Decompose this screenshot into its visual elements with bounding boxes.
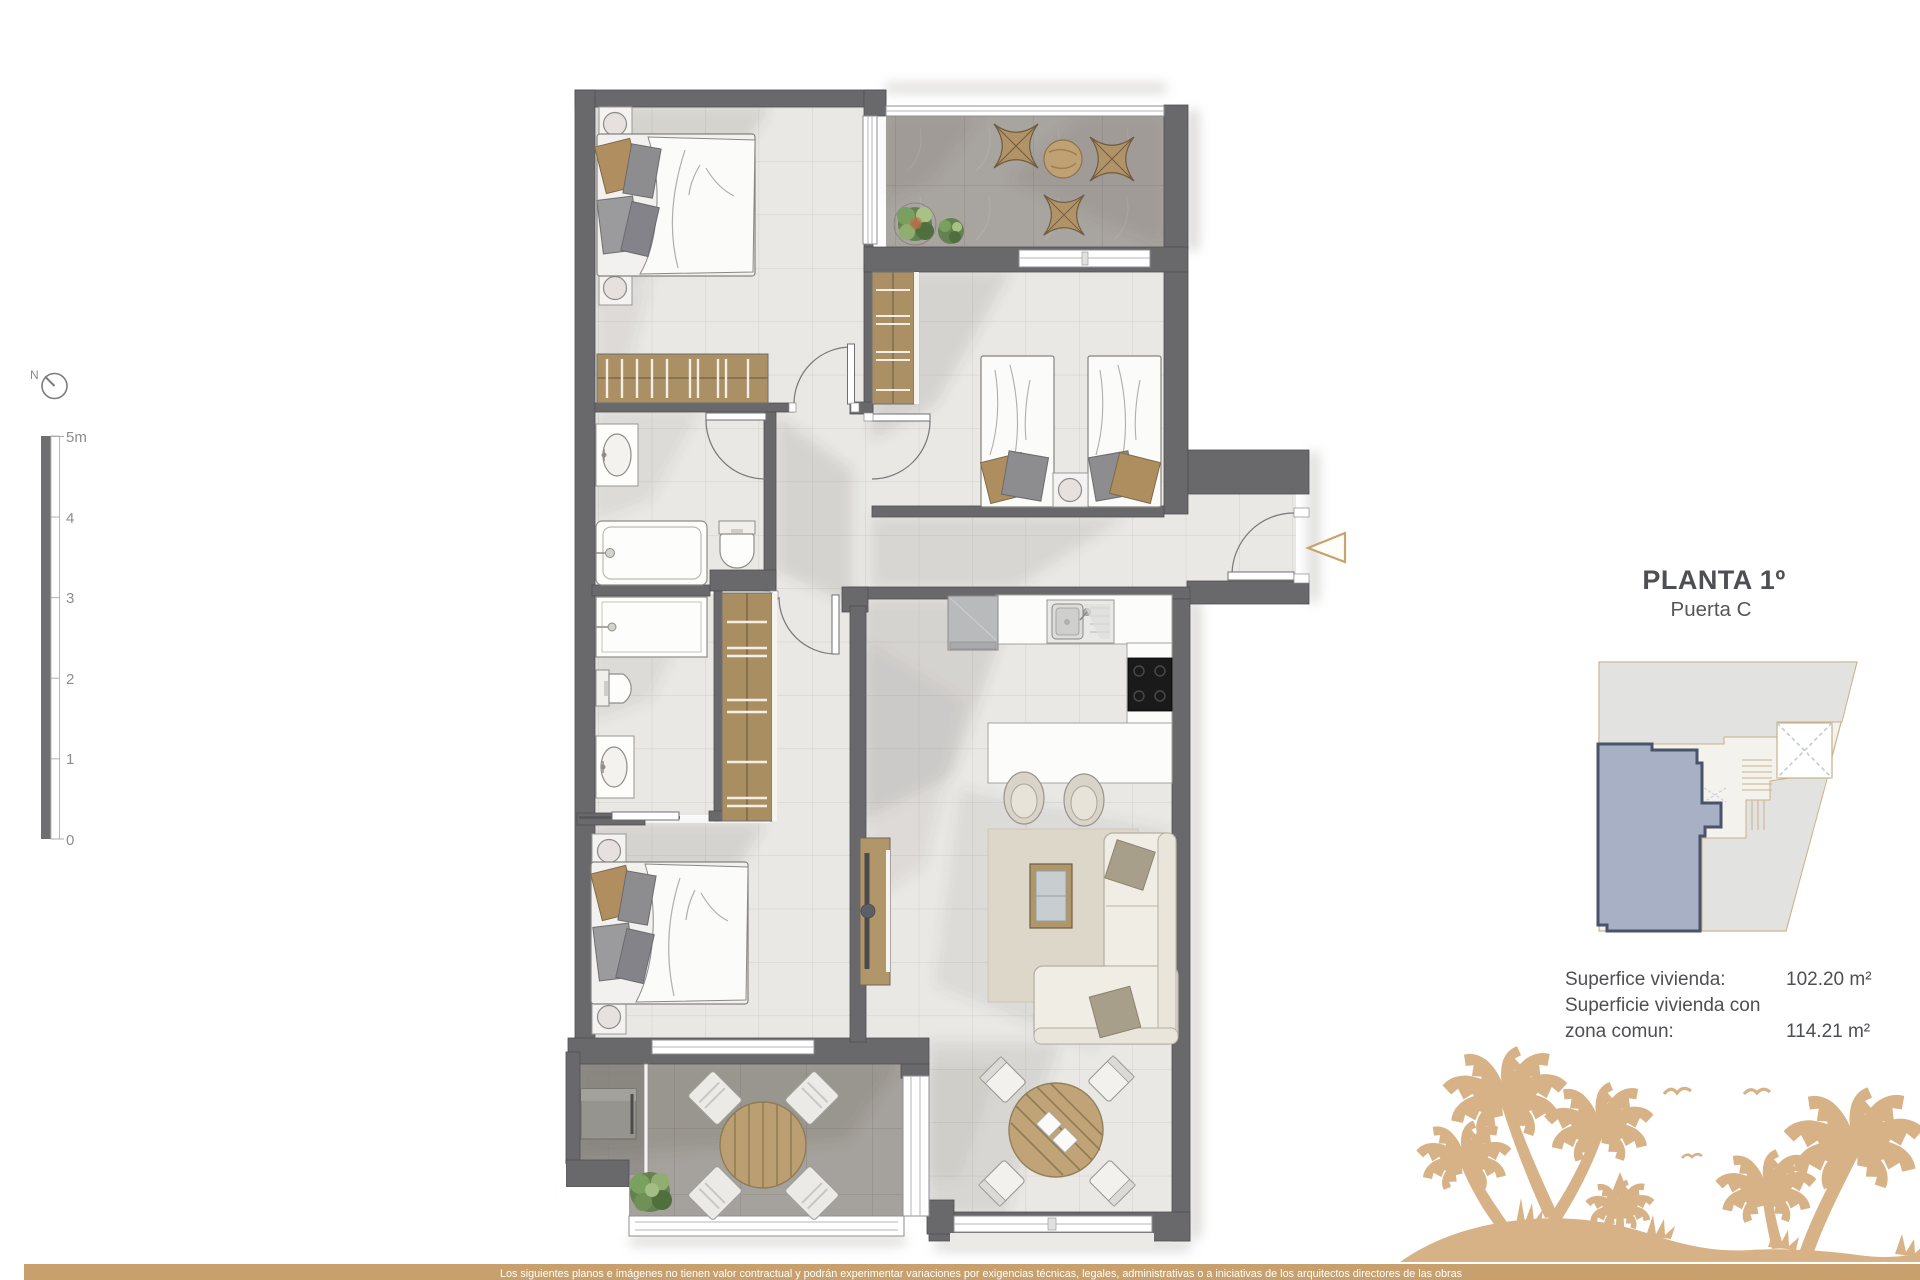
svg-text:Superfice vivienda:: Superfice vivienda: <box>1565 969 1726 990</box>
svg-text:3: 3 <box>66 590 74 607</box>
svg-text:102.20 m²: 102.20 m² <box>1786 969 1872 990</box>
svg-text:zona comun:: zona comun: <box>1565 1021 1674 1042</box>
svg-text:5m: 5m <box>66 429 87 446</box>
svg-text:Puerta C: Puerta C <box>1671 598 1752 621</box>
svg-text:Los siguientes planos e imágen: Los siguientes planos e imágenes no tien… <box>500 1268 1463 1280</box>
svg-text:4: 4 <box>66 510 74 527</box>
svg-text:0: 0 <box>66 832 74 849</box>
svg-text:Superficie vivienda con: Superficie vivienda con <box>1565 995 1760 1016</box>
svg-text:2: 2 <box>66 671 74 688</box>
svg-text:N: N <box>30 368 39 382</box>
svg-text:1: 1 <box>66 751 74 768</box>
svg-text:114.21 m²: 114.21 m² <box>1786 1021 1870 1042</box>
svg-text:PLANTA 1º: PLANTA 1º <box>1642 565 1785 595</box>
